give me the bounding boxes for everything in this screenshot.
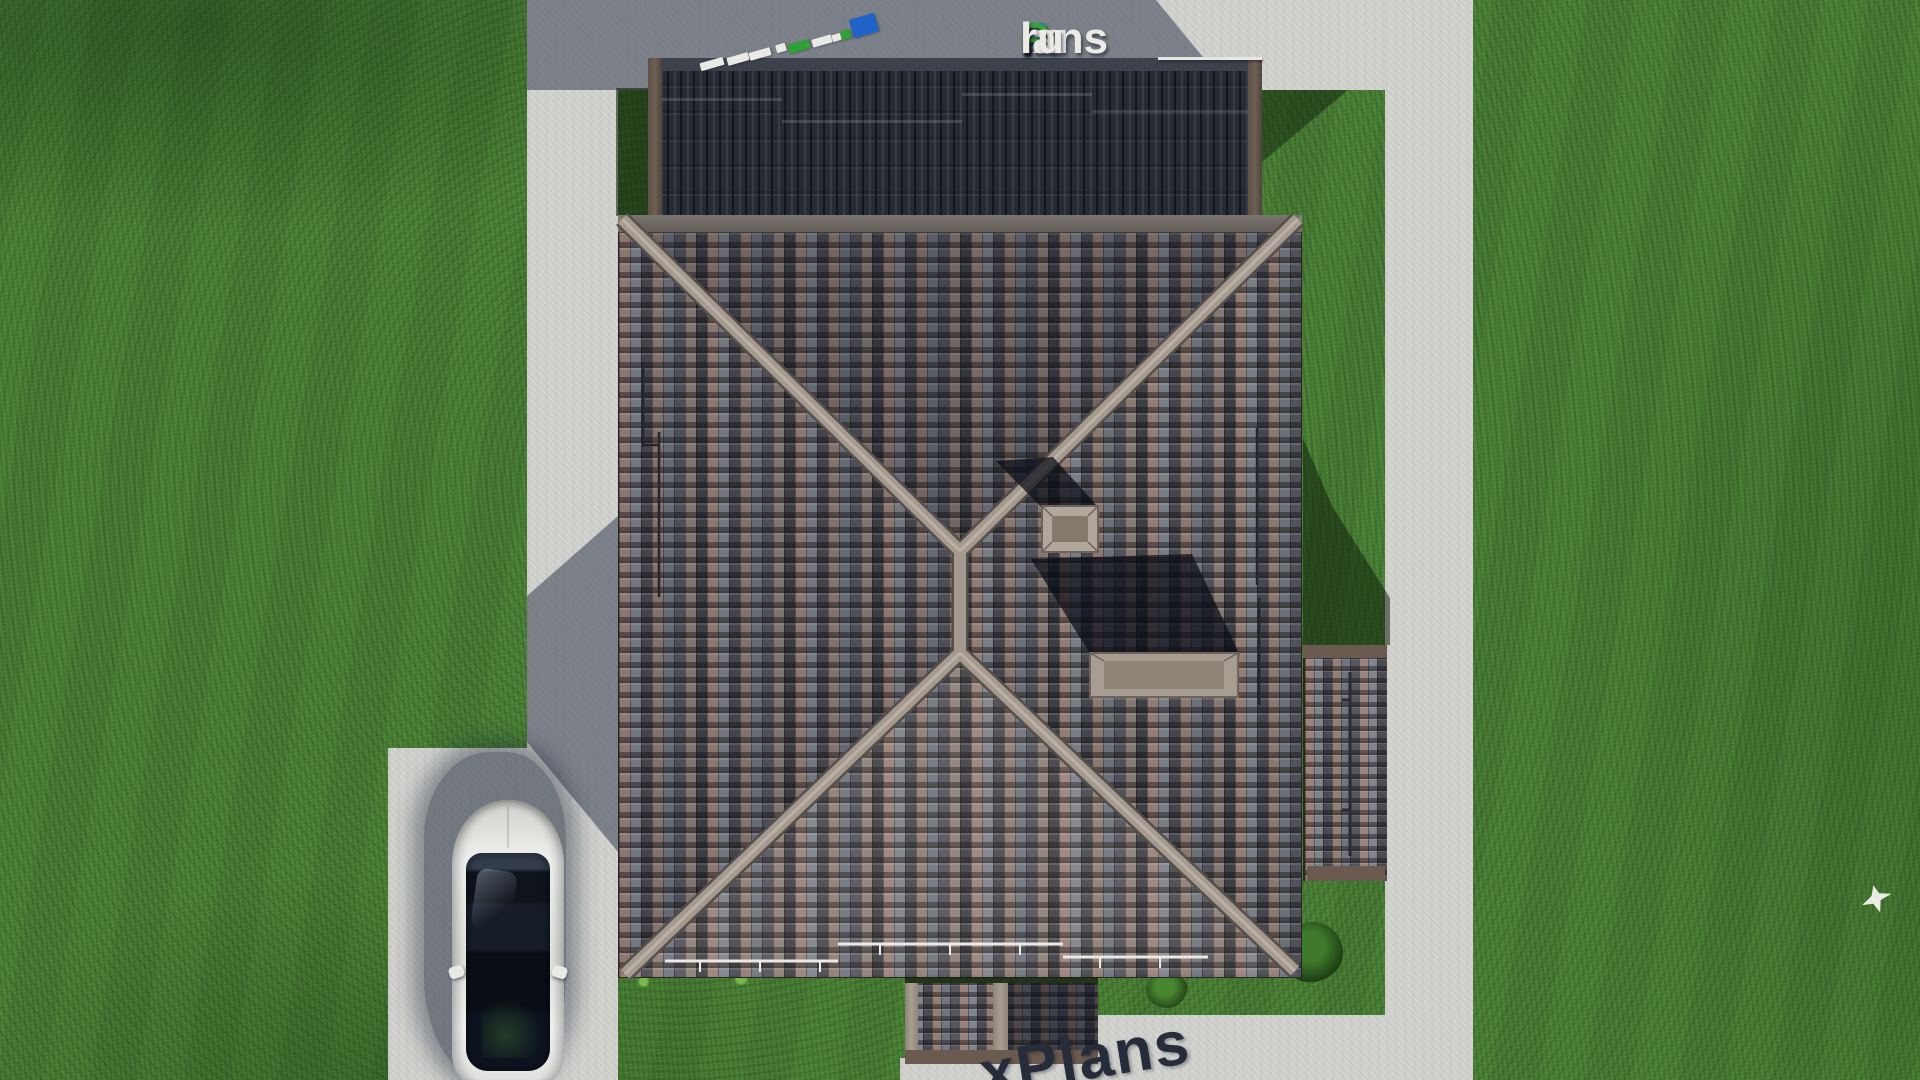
car-windshield-tree-reflection xyxy=(482,1000,542,1058)
roof-top-flashing xyxy=(618,215,1302,233)
aerial-render-scene: FixPlans.ru xPlans.ru xyxy=(0,0,1920,1080)
north-roof-slope-shaded xyxy=(648,58,1262,215)
garage-roof-step xyxy=(662,98,782,101)
logo-underline xyxy=(1158,57,1262,60)
garage-roof-step xyxy=(782,120,962,123)
car-trunk-crease xyxy=(507,806,509,848)
logo-segment: ru xyxy=(1020,14,1064,64)
shaded-grass-left-of-garage xyxy=(616,88,650,216)
walkway-left-band xyxy=(527,0,618,748)
walkway-right-band xyxy=(1385,0,1473,1016)
garage-fascia-left xyxy=(648,58,662,215)
garage-fascia-right xyxy=(1248,58,1262,215)
garage-roof-step xyxy=(1092,110,1248,113)
right-wing-roof xyxy=(1303,645,1387,881)
main-hip-roof xyxy=(618,215,1302,978)
garage-roof-step xyxy=(962,93,1092,96)
car-glass-reflection xyxy=(470,868,518,933)
wing-fascia-top xyxy=(1303,645,1387,658)
wing-fascia-bottom xyxy=(1307,866,1385,881)
